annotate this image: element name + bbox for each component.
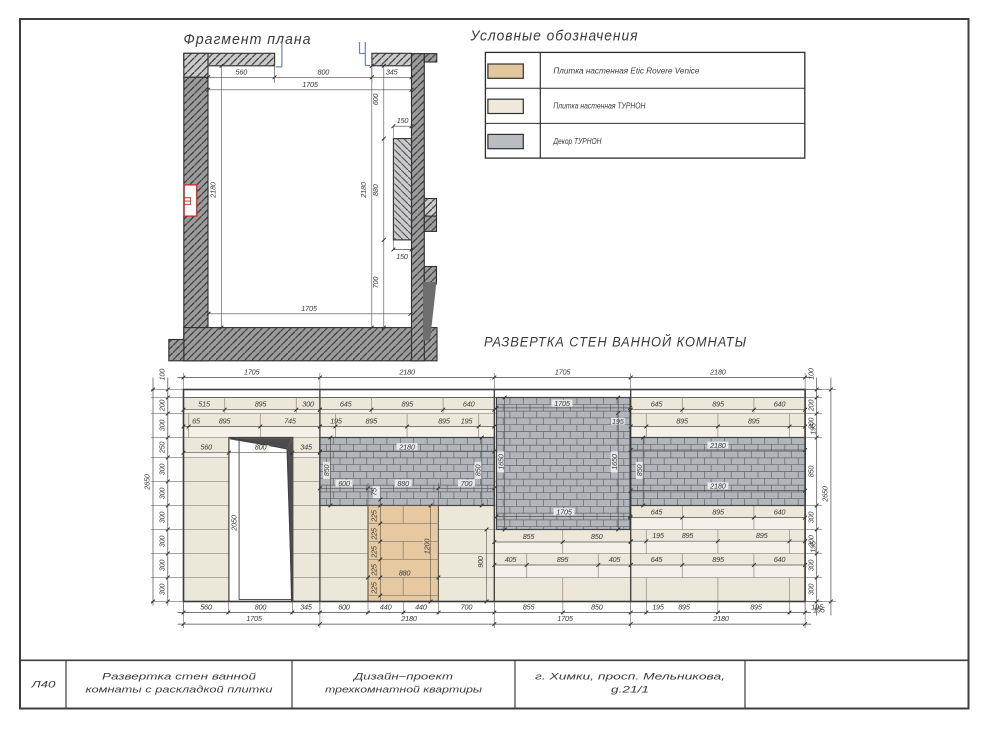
svg-text:855: 855	[523, 532, 536, 541]
svg-text:895: 895	[557, 555, 570, 564]
svg-text:225: 225	[370, 563, 379, 577]
svg-text:250: 250	[157, 442, 166, 455]
svg-text:440: 440	[415, 603, 427, 612]
svg-text:895: 895	[756, 531, 769, 540]
svg-text:855: 855	[523, 603, 536, 612]
svg-text:850: 850	[806, 466, 815, 478]
svg-text:895: 895	[712, 400, 725, 409]
svg-text:405: 405	[609, 555, 622, 564]
svg-text:2180: 2180	[359, 182, 368, 199]
svg-text:895: 895	[682, 531, 695, 540]
svg-text:комнаты с раскладкой плитки: комнаты с раскладкой плитки	[86, 685, 274, 696]
svg-text:895: 895	[712, 507, 725, 516]
svg-text:600: 600	[338, 603, 350, 612]
svg-text:150: 150	[396, 252, 408, 261]
svg-text:895: 895	[712, 555, 725, 564]
svg-text:g.21/1: g.21/1	[611, 685, 649, 696]
svg-text:895: 895	[366, 416, 379, 425]
svg-text:Плитка настенная Etic Rovere V: Плитка настенная Etic Rovere Venice	[553, 66, 699, 76]
svg-text:645: 645	[340, 400, 353, 409]
svg-text:850: 850	[322, 464, 331, 476]
svg-text:300: 300	[157, 488, 166, 500]
svg-text:2180: 2180	[709, 482, 726, 491]
svg-text:895: 895	[676, 416, 689, 425]
svg-text:895: 895	[219, 416, 232, 425]
svg-text:745: 745	[284, 416, 297, 425]
svg-text:640: 640	[774, 507, 786, 516]
svg-text:Л40: Л40	[30, 680, 56, 691]
svg-text:Условные обозначения: Условные обозначения	[470, 29, 639, 45]
svg-text:300: 300	[157, 584, 166, 596]
svg-text:195: 195	[461, 416, 474, 425]
svg-text:100: 100	[806, 368, 815, 380]
svg-text:2650: 2650	[820, 486, 829, 503]
svg-text:345: 345	[386, 67, 399, 76]
svg-text:Развертка стен ванной: Развертка стен ванной	[102, 672, 257, 683]
svg-text:Фрагмент плана: Фрагмент плана	[184, 32, 312, 48]
svg-text:Плитка настенная ТУРНОН: Плитка настенная ТУРНОН	[553, 101, 646, 111]
svg-text:225: 225	[370, 545, 379, 559]
svg-text:225: 225	[370, 509, 379, 523]
svg-text:600: 600	[338, 479, 350, 488]
svg-text:345: 345	[300, 443, 313, 452]
svg-text:195: 195	[809, 540, 818, 553]
svg-text:1705: 1705	[244, 368, 261, 377]
svg-text:225: 225	[370, 527, 379, 541]
svg-text:640: 640	[774, 555, 786, 564]
svg-text:300: 300	[302, 400, 314, 409]
svg-text:200: 200	[157, 400, 166, 413]
svg-text:880: 880	[371, 184, 380, 196]
svg-text:1705: 1705	[302, 80, 319, 89]
svg-text:300: 300	[157, 536, 166, 548]
svg-text:1705: 1705	[246, 614, 263, 623]
svg-text:850: 850	[635, 464, 644, 476]
svg-text:600: 600	[371, 94, 380, 106]
svg-text:1200: 1200	[422, 539, 431, 555]
svg-text:850: 850	[591, 603, 603, 612]
svg-text:195: 195	[809, 422, 818, 435]
svg-text:645: 645	[651, 507, 664, 516]
svg-text:895: 895	[255, 400, 268, 409]
svg-text:880: 880	[397, 479, 409, 488]
svg-text:300: 300	[806, 560, 815, 572]
svg-text:1650: 1650	[610, 454, 619, 470]
svg-text:1705: 1705	[301, 304, 318, 313]
svg-text:1705: 1705	[554, 399, 571, 408]
svg-text:895: 895	[748, 416, 761, 425]
svg-text:515: 515	[198, 400, 211, 409]
svg-text:2180: 2180	[709, 441, 726, 450]
svg-text:640: 640	[463, 400, 475, 409]
svg-text:560: 560	[200, 603, 212, 612]
svg-text:65: 65	[192, 416, 201, 425]
svg-text:300: 300	[806, 584, 815, 596]
svg-text:405: 405	[505, 555, 518, 564]
svg-text:850: 850	[591, 532, 603, 541]
svg-text:800: 800	[255, 443, 267, 452]
svg-text:2650: 2650	[142, 474, 151, 491]
svg-text:700: 700	[371, 277, 380, 289]
svg-text:225: 225	[370, 581, 379, 595]
svg-text:700: 700	[461, 603, 473, 612]
svg-text:150: 150	[397, 116, 409, 125]
svg-text:560: 560	[200, 443, 212, 452]
svg-text:700: 700	[461, 479, 473, 488]
svg-text:300: 300	[157, 560, 166, 572]
svg-text:895: 895	[678, 603, 691, 612]
svg-text:г. Химки, просп. Мельникова: г. Химки, просп. Мельникова,	[535, 672, 725, 683]
svg-text:900: 900	[476, 556, 485, 568]
svg-text:895: 895	[402, 400, 415, 409]
svg-text:645: 645	[651, 400, 664, 409]
svg-text:2180: 2180	[208, 182, 217, 199]
svg-text:300: 300	[157, 464, 166, 476]
svg-text:800: 800	[318, 67, 330, 76]
svg-text:800: 800	[255, 603, 267, 612]
svg-text:645: 645	[651, 555, 664, 564]
svg-text:2180: 2180	[398, 368, 415, 377]
svg-text:300: 300	[157, 420, 166, 432]
svg-text:РАЗВЕРТКА СТЕН ВАННОЙ КОМНАТЫ: РАЗВЕРТКА СТЕН ВАННОЙ КОМНАТЫ	[484, 334, 747, 350]
svg-text:200: 200	[806, 400, 815, 413]
svg-text:195: 195	[652, 531, 665, 540]
svg-text:195: 195	[652, 603, 665, 612]
svg-text:1705: 1705	[557, 614, 574, 623]
svg-text:2180: 2180	[400, 614, 417, 623]
svg-text:100: 100	[157, 369, 166, 381]
svg-text:1705: 1705	[555, 368, 572, 377]
svg-text:195: 195	[330, 416, 343, 425]
svg-text:2180: 2180	[398, 442, 415, 451]
svg-text:трехкомнатной квартиры: трехкомнатной квартиры	[325, 685, 482, 696]
svg-text:300: 300	[806, 512, 815, 524]
svg-text:1705: 1705	[556, 507, 573, 516]
svg-text:Дизайн−проект: Дизайн−проект	[353, 672, 453, 683]
svg-text:Декор ТУРНОН: Декор ТУРНОН	[553, 136, 602, 146]
svg-text:560: 560	[236, 67, 248, 76]
svg-text:640: 640	[774, 400, 786, 409]
svg-text:895: 895	[438, 416, 451, 425]
svg-text:Ш: Ш	[183, 196, 194, 205]
svg-text:880: 880	[399, 568, 411, 577]
svg-text:195: 195	[813, 605, 826, 614]
svg-text:75: 75	[370, 487, 379, 496]
svg-text:2180: 2180	[709, 368, 726, 377]
svg-text:1650: 1650	[497, 454, 506, 470]
svg-text:440: 440	[380, 603, 392, 612]
svg-text:2050: 2050	[229, 515, 238, 532]
svg-text:345: 345	[300, 603, 313, 612]
svg-text:2180: 2180	[712, 614, 729, 623]
svg-text:850: 850	[474, 464, 483, 476]
svg-text:300: 300	[157, 512, 166, 524]
svg-text:895: 895	[750, 603, 763, 612]
